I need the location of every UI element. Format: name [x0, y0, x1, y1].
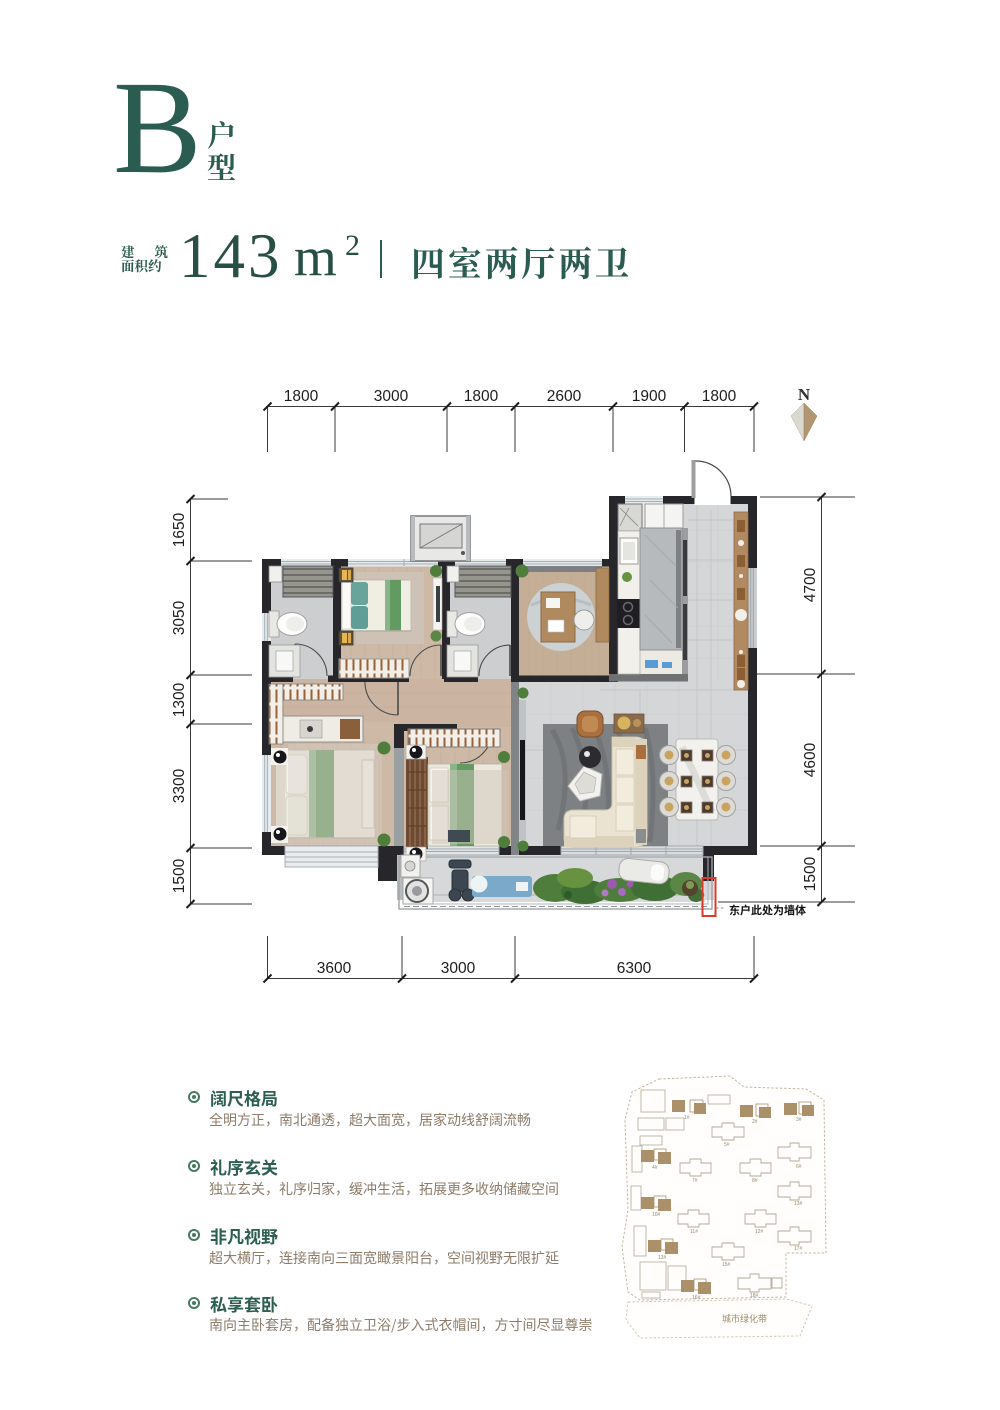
svg-text:1800: 1800	[464, 388, 499, 405]
svg-text:4700: 4700	[802, 567, 819, 602]
svg-text:3300: 3300	[171, 768, 188, 803]
svg-text:2#: 2#	[752, 1119, 758, 1125]
svg-text:6300: 6300	[617, 960, 652, 977]
svg-text:13#: 13#	[658, 1255, 667, 1261]
svg-text:16#: 16#	[692, 1295, 701, 1301]
svg-text:17#: 17#	[794, 1246, 803, 1252]
svg-text:1500: 1500	[802, 856, 819, 891]
svg-text:1#: 1#	[684, 1115, 690, 1121]
svg-text:3050: 3050	[171, 600, 188, 635]
svg-text:城市绿化带: 城市绿化带	[722, 1312, 767, 1325]
svg-text:1650: 1650	[171, 512, 188, 547]
svg-text:3600: 3600	[317, 960, 352, 977]
svg-text:13#: 13#	[794, 1201, 803, 1207]
svg-text:12#: 12#	[755, 1229, 764, 1235]
svg-text:18#: 18#	[750, 1293, 759, 1299]
svg-text:1300: 1300	[171, 682, 188, 717]
svg-text:8#: 8#	[752, 1178, 758, 1184]
svg-text:7#: 7#	[692, 1178, 698, 1184]
svg-text:东户此处为墙体: 东户此处为墙体	[729, 902, 806, 918]
svg-text:1800: 1800	[702, 388, 737, 405]
svg-text:1500: 1500	[171, 858, 188, 893]
svg-text:3#: 3#	[796, 1117, 802, 1123]
svg-text:1900: 1900	[632, 388, 667, 405]
svg-text:5#: 5#	[724, 1142, 730, 1148]
svg-text:4600: 4600	[802, 742, 819, 777]
svg-text:2600: 2600	[547, 388, 582, 405]
svg-text:3000: 3000	[441, 960, 476, 977]
svg-text:3000: 3000	[374, 388, 409, 405]
svg-text:15#: 15#	[722, 1262, 731, 1268]
svg-text:4#: 4#	[652, 1165, 658, 1171]
svg-text:10#: 10#	[652, 1212, 661, 1218]
svg-text:11#: 11#	[690, 1229, 698, 1235]
svg-text:6#: 6#	[796, 1164, 802, 1170]
svg-text:1800: 1800	[284, 388, 319, 405]
svg-text:N: N	[798, 385, 811, 404]
